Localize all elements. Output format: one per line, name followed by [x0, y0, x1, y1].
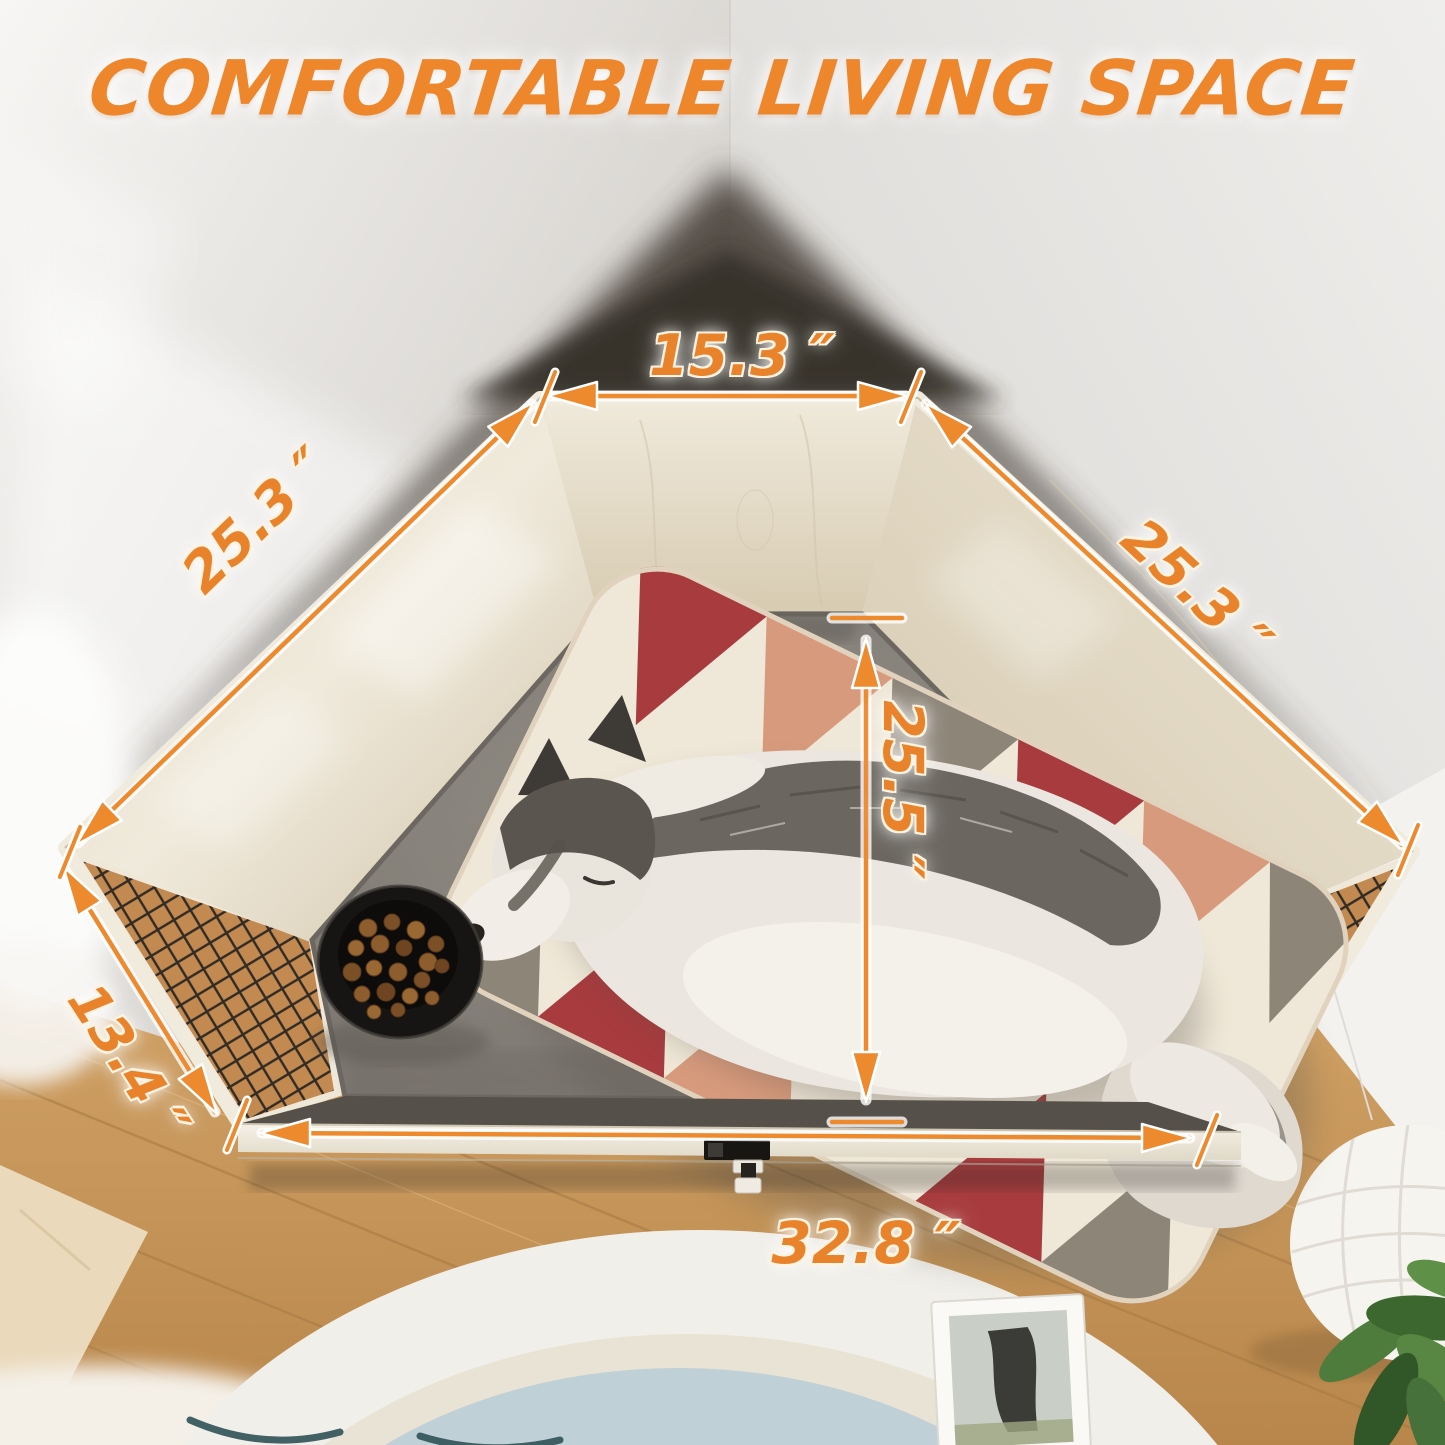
food-bowl — [314, 886, 490, 1064]
headline-title: COMFORTABLE LIVING SPACE — [85, 44, 1359, 133]
dimension-label-inner-depth: 25.5 ″ — [871, 700, 935, 879]
dimension-label-front-width: 32.8 ″ — [771, 1209, 960, 1277]
product-dimension-photo: COMFORTABLE LIVING SPACE 15.3 ″ 25.3 ″ 2… — [0, 0, 1445, 1445]
scene-illustration — [0, 0, 1445, 1445]
photo-card — [931, 1294, 1091, 1445]
dimension-label-back-width: 15.3 ″ — [649, 323, 835, 389]
